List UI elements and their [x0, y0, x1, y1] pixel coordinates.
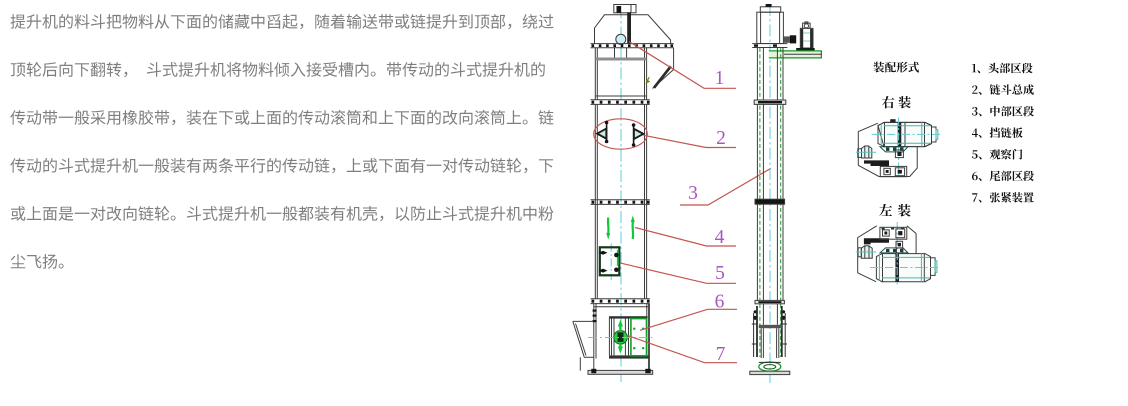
svg-text:5: 5: [715, 263, 725, 284]
svg-text:3: 3: [688, 183, 698, 204]
svg-text:2: 2: [716, 128, 726, 149]
svg-text:1: 1: [715, 68, 725, 89]
svg-text:7: 7: [716, 344, 726, 365]
svg-text:4: 4: [715, 227, 725, 248]
svg-text:6: 6: [715, 291, 725, 312]
